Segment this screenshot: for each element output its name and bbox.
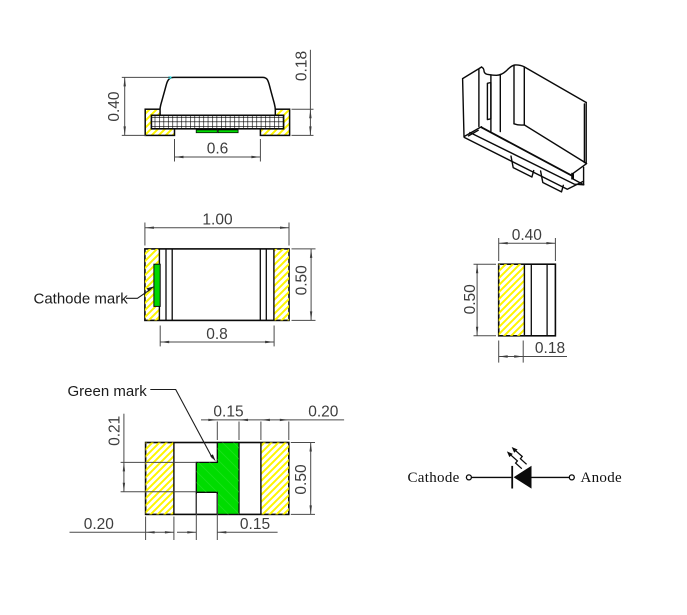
svg-text:0.50: 0.50 — [293, 265, 310, 296]
svg-text:0.18: 0.18 — [293, 51, 310, 81]
svg-text:0.15: 0.15 — [213, 404, 243, 421]
svg-text:0.6: 0.6 — [207, 141, 229, 158]
svg-text:0.21: 0.21 — [106, 416, 123, 446]
svg-text:Green mark: Green mark — [68, 383, 148, 400]
svg-text:Cathode mark: Cathode mark — [34, 291, 129, 308]
svg-text:0.18: 0.18 — [535, 340, 565, 357]
svg-text:Cathode: Cathode — [408, 470, 460, 486]
svg-text:1.00: 1.00 — [202, 211, 233, 228]
svg-text:Anode: Anode — [581, 470, 623, 486]
svg-text:0.8: 0.8 — [206, 326, 228, 343]
svg-text:0.15: 0.15 — [240, 516, 270, 533]
svg-text:0.50: 0.50 — [462, 284, 479, 315]
svg-text:0.40: 0.40 — [512, 227, 543, 244]
svg-text:0.20: 0.20 — [308, 404, 339, 421]
svg-text:0.40: 0.40 — [106, 91, 123, 122]
svg-text:0.50: 0.50 — [293, 464, 310, 495]
svg-text:0.20: 0.20 — [84, 516, 115, 533]
